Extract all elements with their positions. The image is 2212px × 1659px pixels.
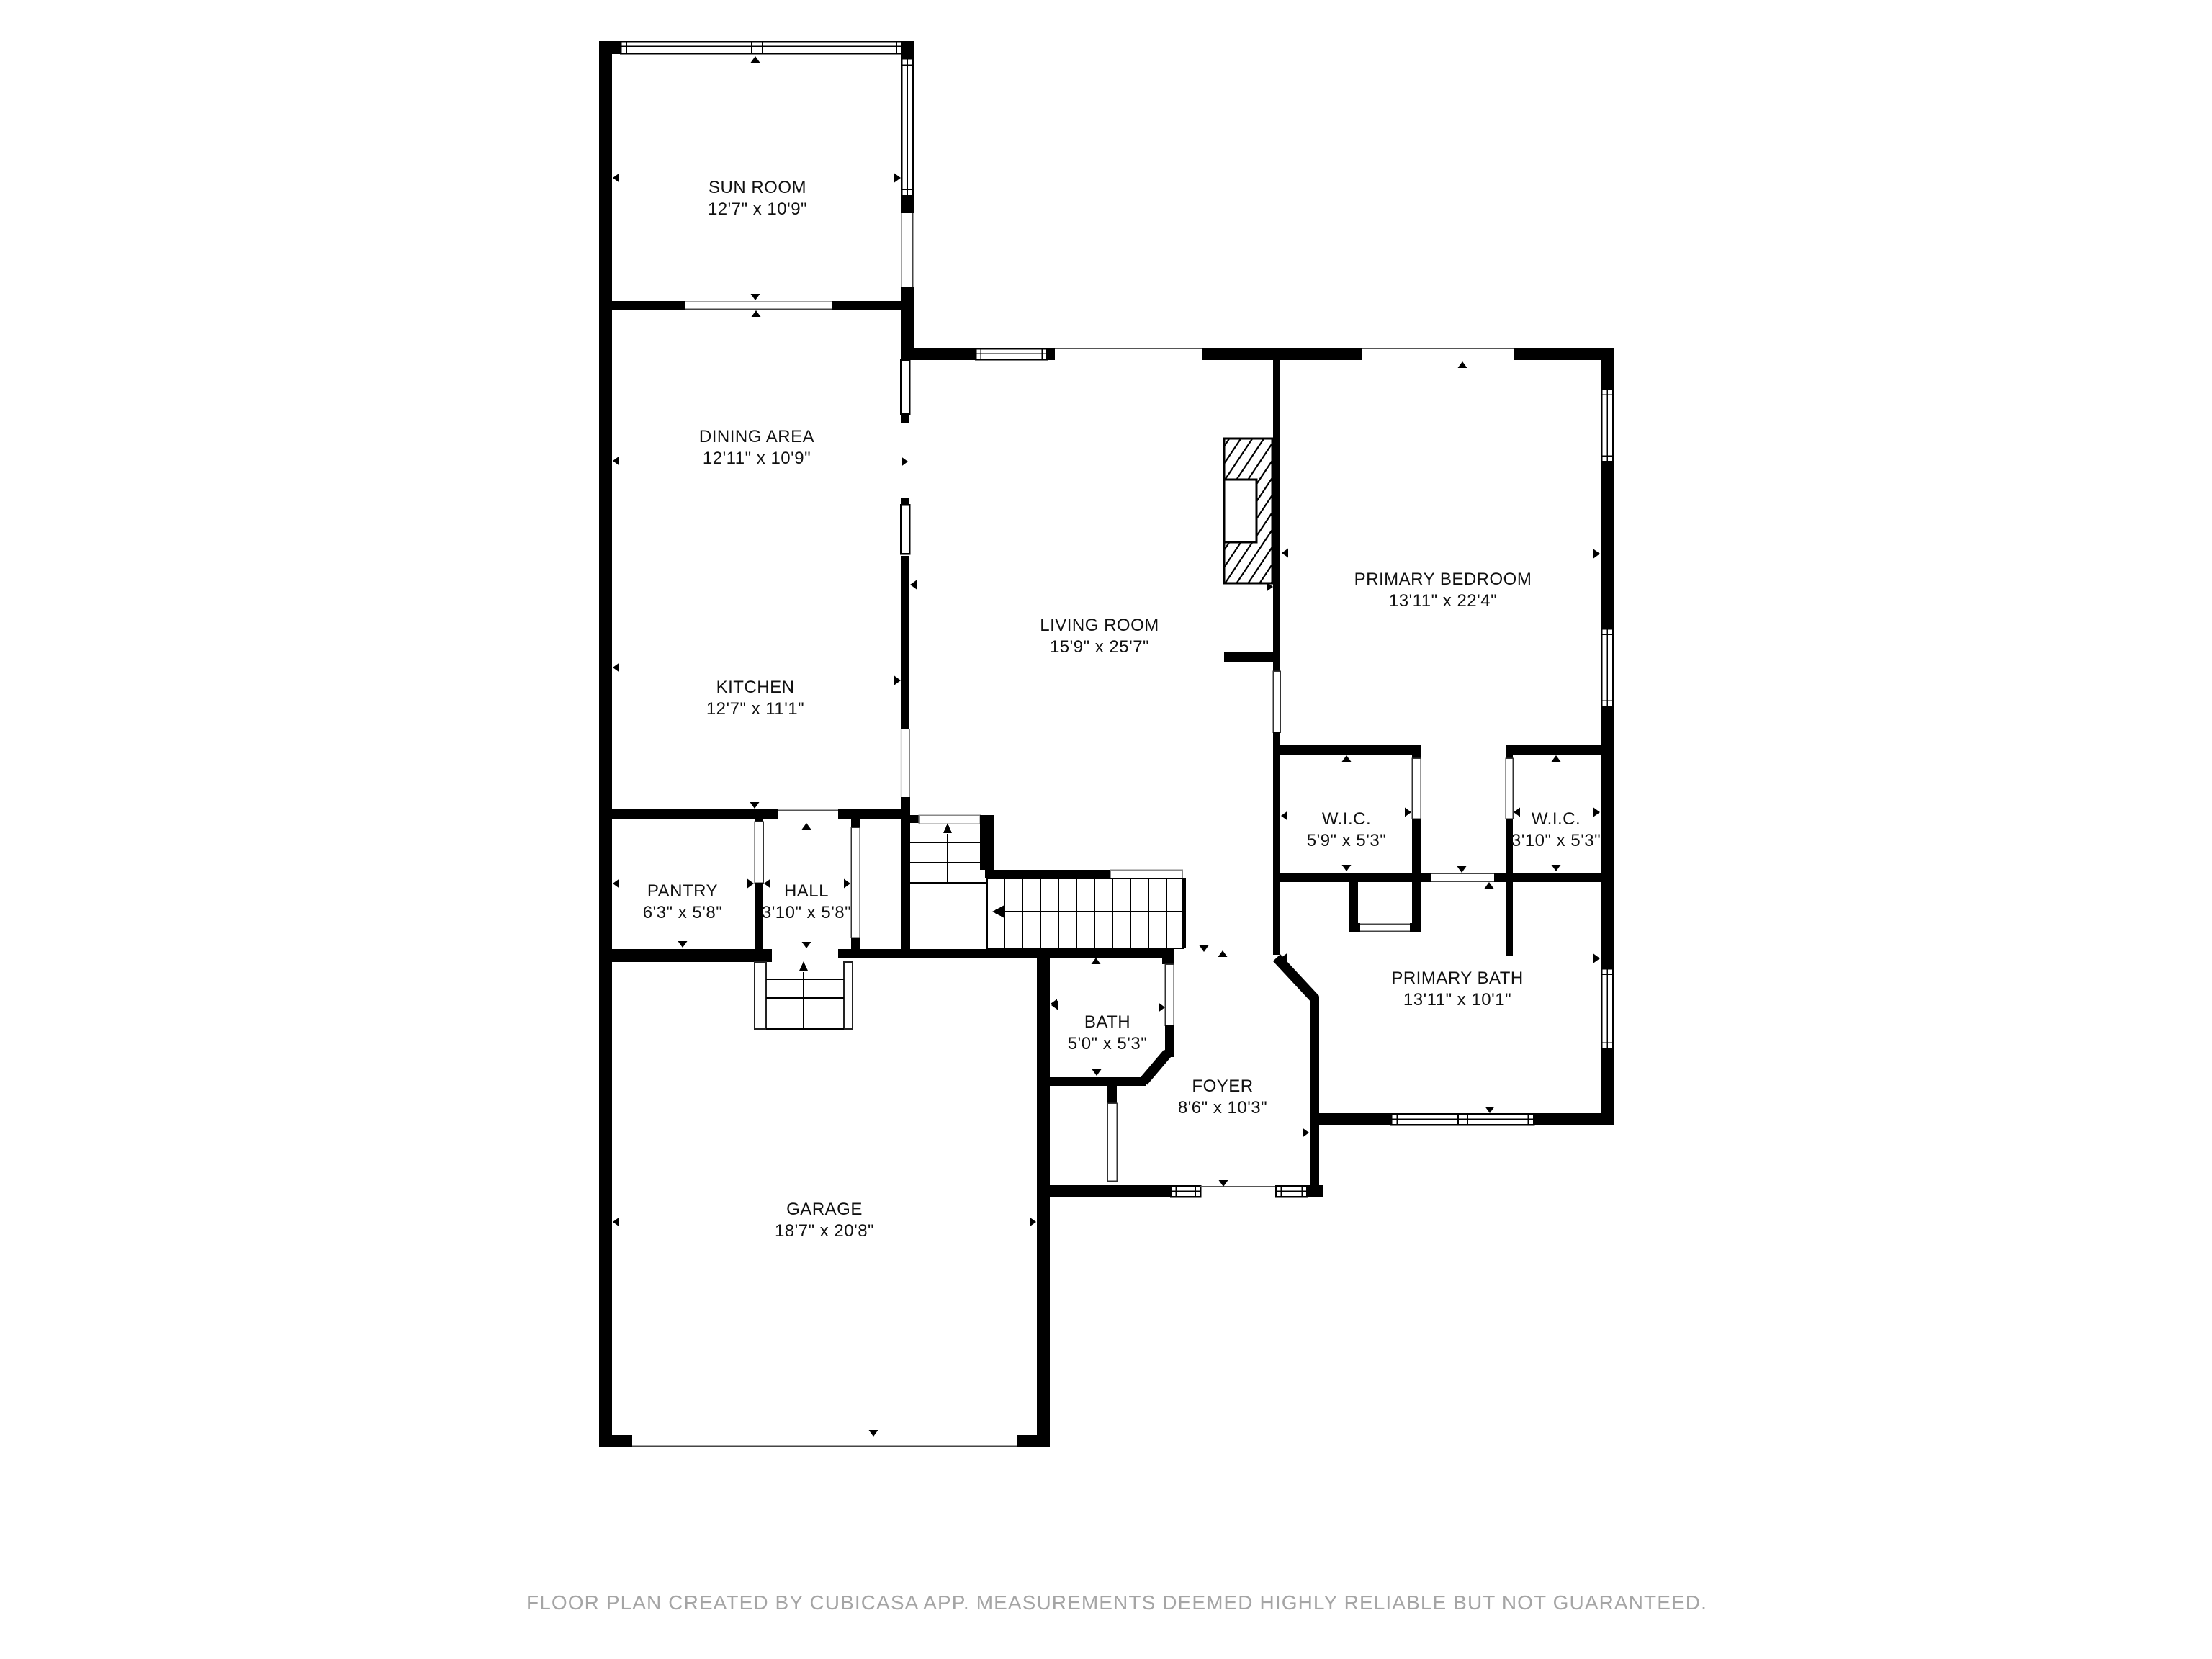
svg-text:6'3" x 5'8": 6'3" x 5'8" [643, 903, 722, 922]
svg-text:W.I.C.: W.I.C. [1322, 809, 1371, 829]
svg-text:BATH: BATH [1084, 1012, 1130, 1032]
svg-text:DINING AREA: DINING AREA [699, 427, 814, 446]
svg-text:PRIMARY BATH: PRIMARY BATH [1391, 968, 1523, 988]
svg-text:5'9" x 5'3": 5'9" x 5'3" [1307, 831, 1386, 850]
svg-text:HALL: HALL [784, 881, 829, 901]
svg-text:PANTRY: PANTRY [647, 881, 718, 901]
svg-text:12'7" x 11'1": 12'7" x 11'1" [706, 699, 804, 719]
svg-text:GARAGE: GARAGE [786, 1200, 863, 1219]
svg-text:18'7" x 20'8": 18'7" x 20'8" [775, 1221, 874, 1241]
svg-text:12'7" x 10'9": 12'7" x 10'9" [708, 199, 807, 219]
svg-text:LIVING ROOM: LIVING ROOM [1040, 616, 1159, 635]
svg-text:15'9" x 25'7": 15'9" x 25'7" [1050, 637, 1149, 657]
svg-text:12'11" x 10'9": 12'11" x 10'9" [703, 449, 811, 468]
svg-text:3'10" x 5'8": 3'10" x 5'8" [762, 903, 851, 922]
svg-text:W.I.C.: W.I.C. [1532, 809, 1581, 829]
svg-text:PRIMARY BEDROOM: PRIMARY BEDROOM [1354, 570, 1532, 589]
svg-text:13'11" x 22'4": 13'11" x 22'4" [1389, 591, 1497, 611]
svg-text:SUN ROOM: SUN ROOM [709, 178, 806, 197]
svg-text:FLOOR PLAN CREATED BY CUBICASA: FLOOR PLAN CREATED BY CUBICASA APP. MEAS… [526, 1591, 1707, 1614]
svg-text:3'10" x 5'3": 3'10" x 5'3" [1511, 831, 1601, 850]
svg-text:KITCHEN: KITCHEN [716, 678, 795, 697]
svg-text:5'0" x 5'3": 5'0" x 5'3" [1068, 1034, 1147, 1053]
svg-text:13'11" x 10'1": 13'11" x 10'1" [1403, 990, 1511, 1010]
svg-text:FOYER: FOYER [1192, 1076, 1253, 1096]
svg-text:8'6" x 10'3": 8'6" x 10'3" [1178, 1098, 1267, 1118]
